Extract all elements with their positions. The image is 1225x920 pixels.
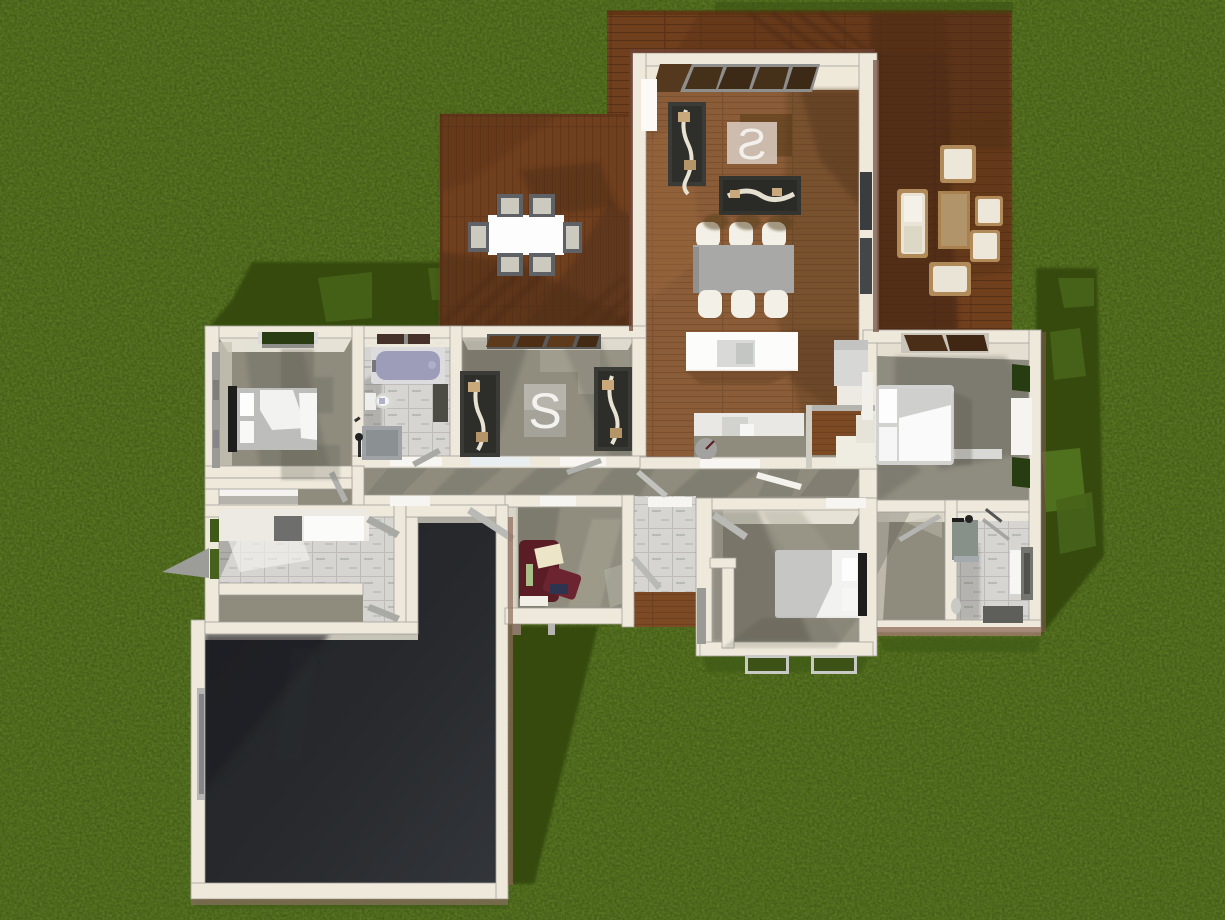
svg-text:S: S — [528, 383, 561, 439]
svg-text:S: S — [737, 120, 766, 169]
